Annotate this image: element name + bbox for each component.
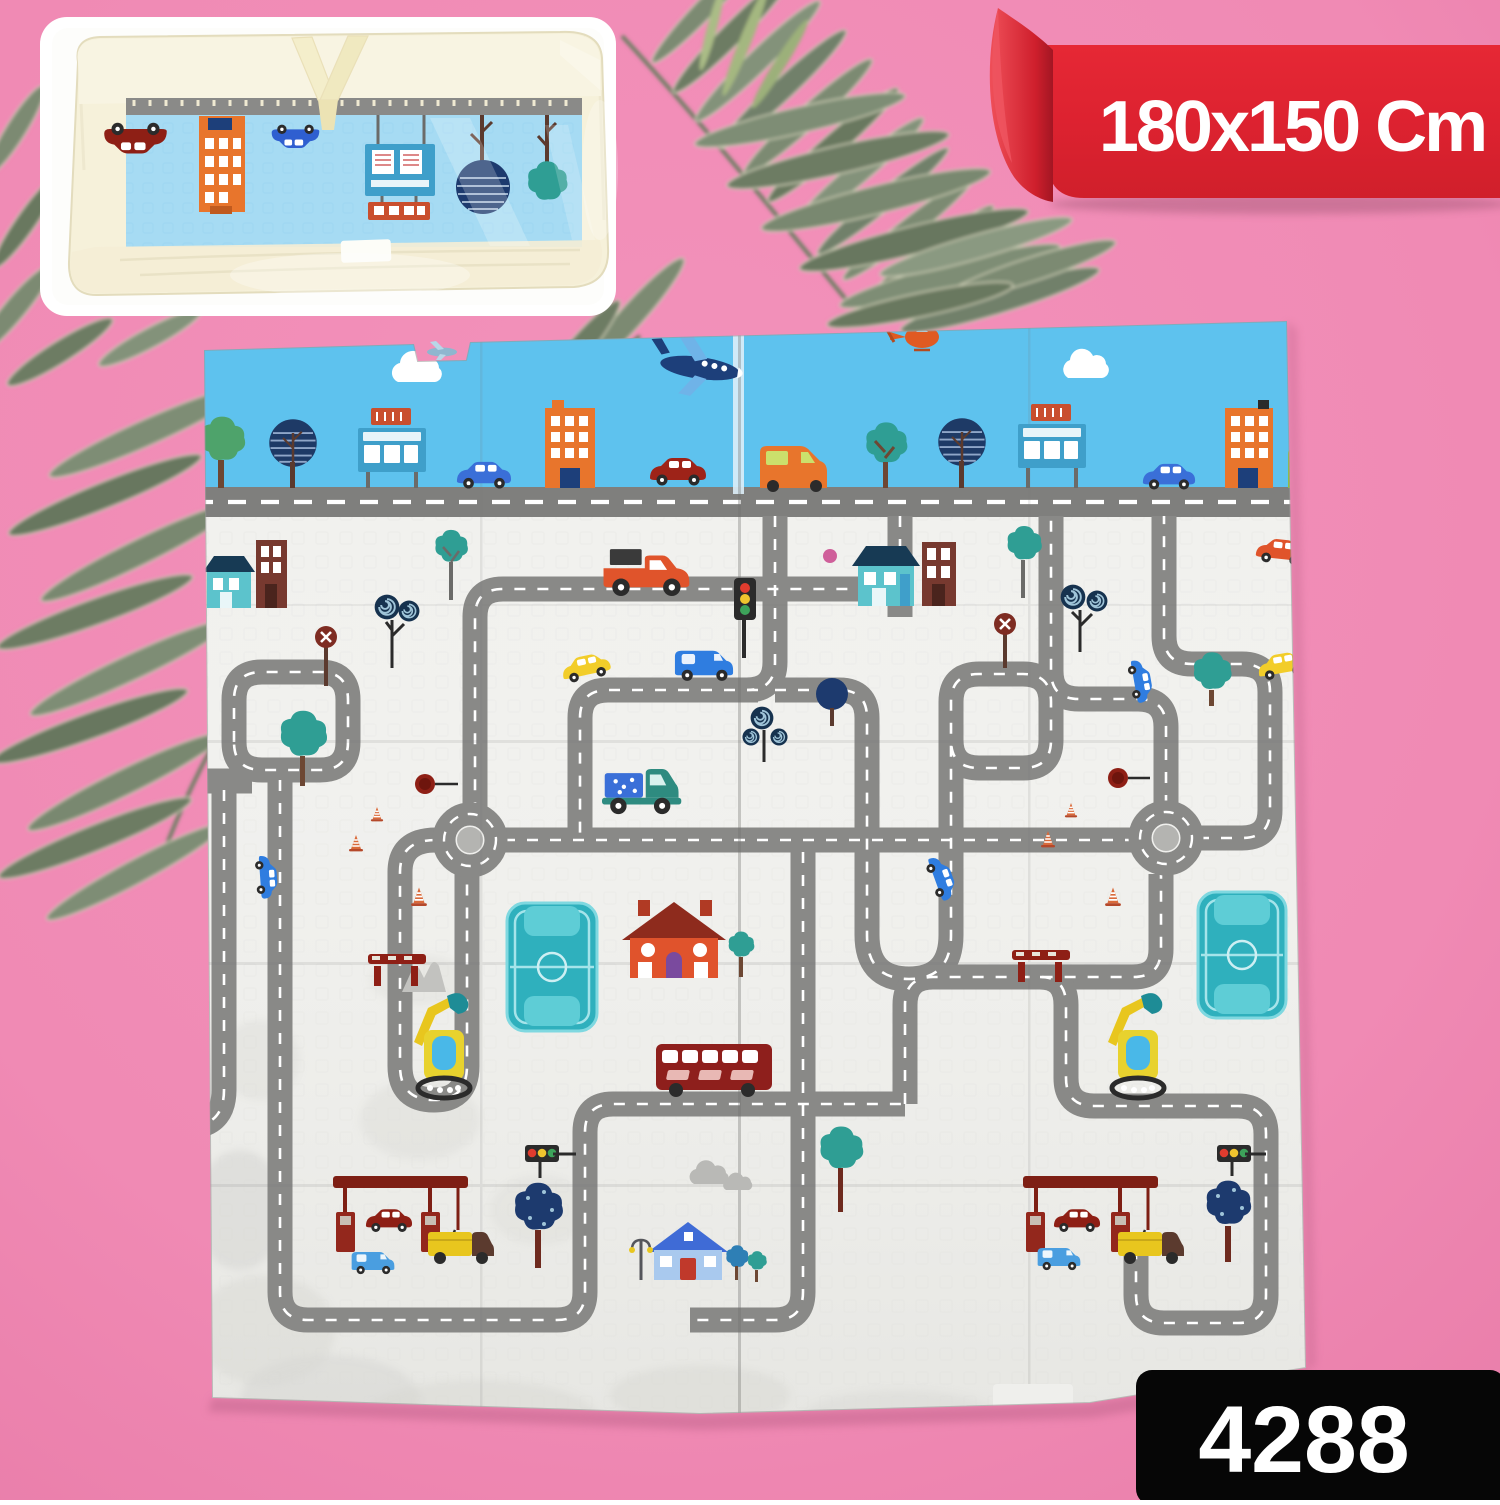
svg-text:4288: 4288 [1198,1387,1409,1493]
svg-text:180x150 Cm: 180x150 Cm [1099,87,1485,167]
